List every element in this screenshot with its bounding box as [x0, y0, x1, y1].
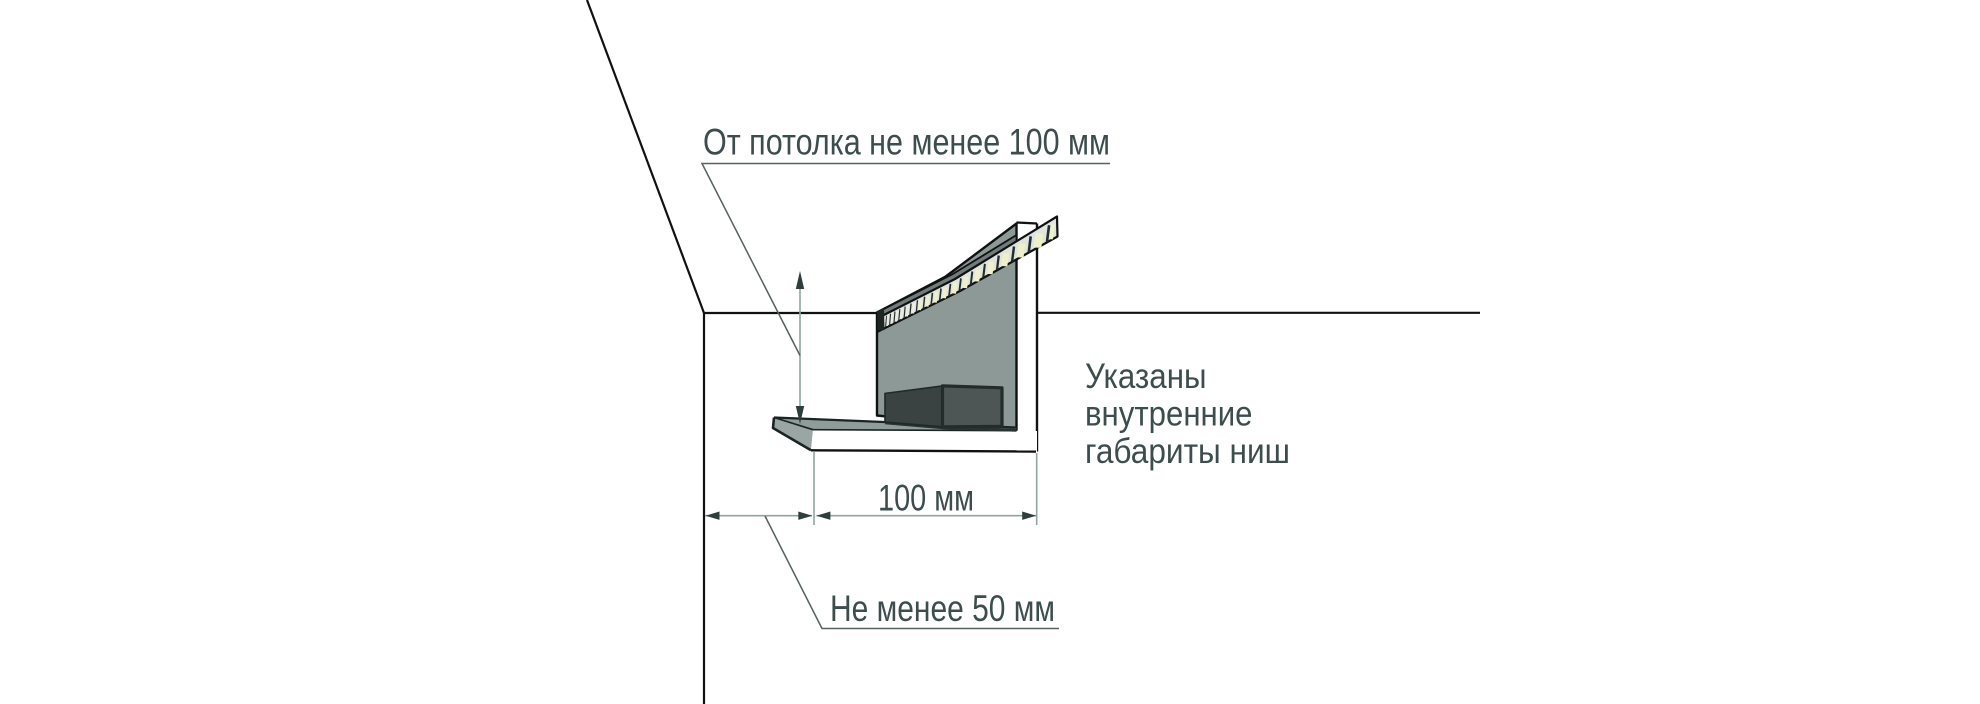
- svg-text:Указаны: Указаны: [1085, 356, 1207, 396]
- svg-text:100 мм: 100 мм: [878, 478, 974, 519]
- svg-text:внутренние: внутренние: [1085, 394, 1253, 434]
- svg-text:От потолка не менее 100 мм: От потолка не менее 100 мм: [703, 122, 1110, 163]
- svg-text:Не менее 50 мм: Не менее 50 мм: [830, 588, 1055, 629]
- svg-text:габариты ниш: габариты ниш: [1085, 431, 1290, 471]
